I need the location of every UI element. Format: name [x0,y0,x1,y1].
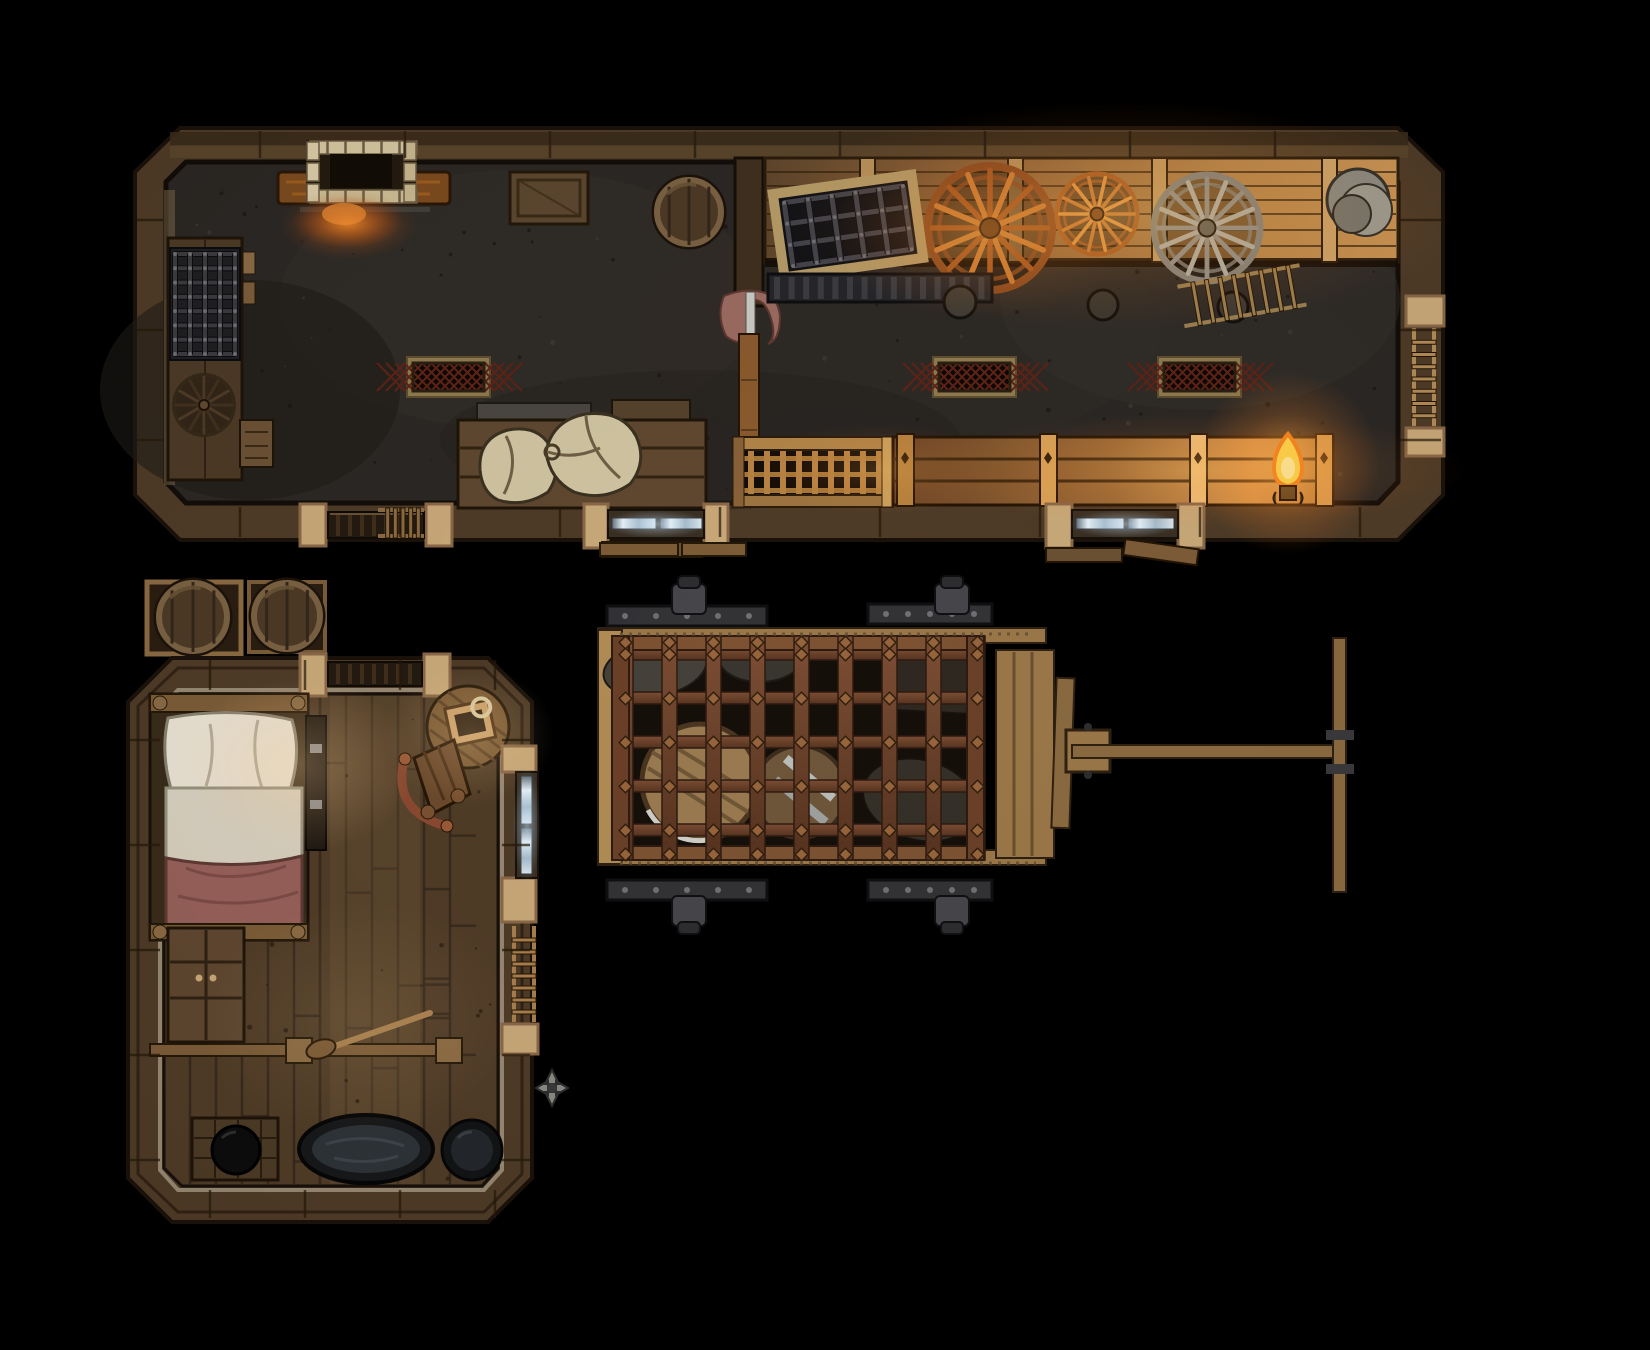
map-canvas [0,0,1650,1350]
vignette [0,0,1650,1350]
battle-map [0,0,1650,1350]
